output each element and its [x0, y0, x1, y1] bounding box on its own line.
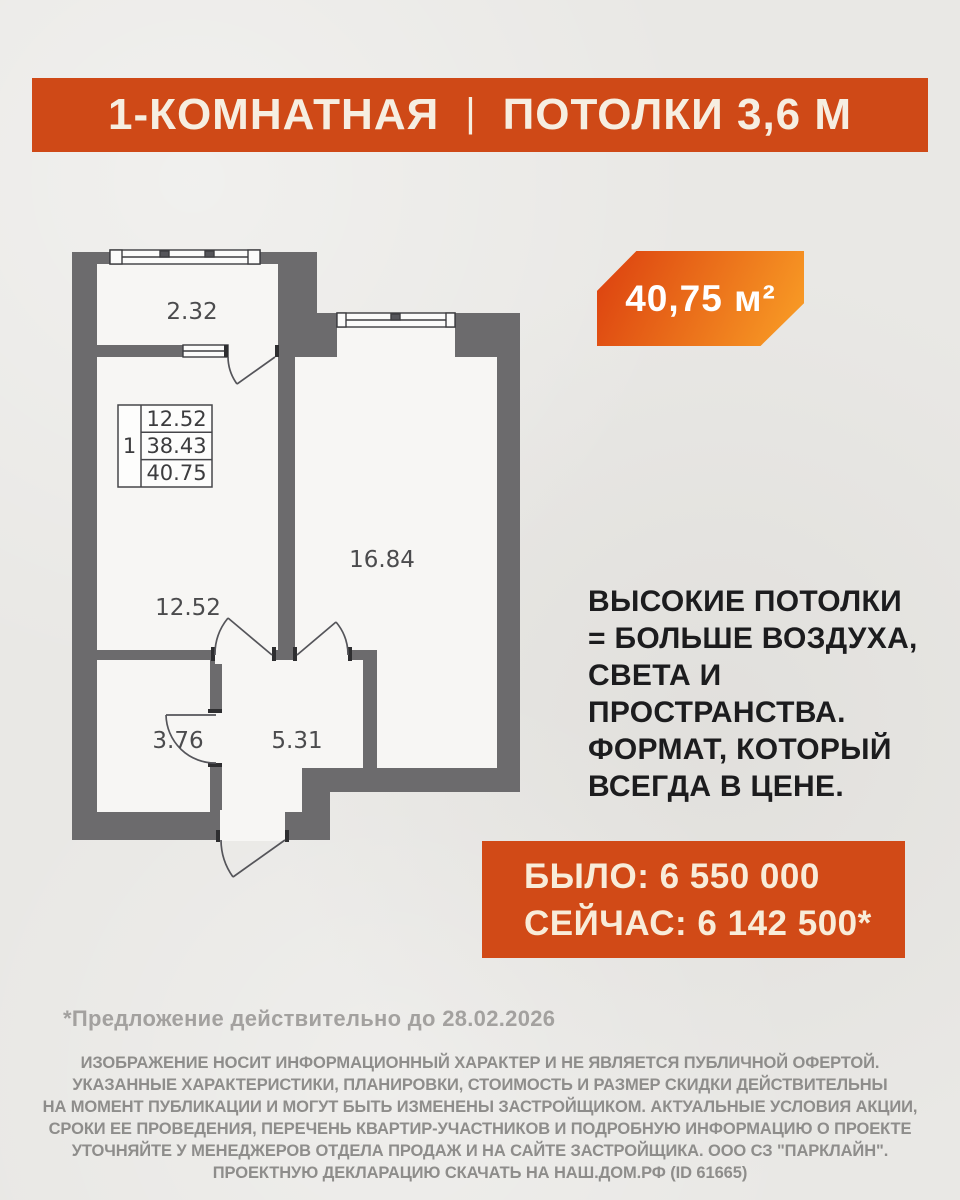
header-divider: |	[465, 91, 476, 136]
unit-area-no-balcony: 38.43	[146, 434, 206, 458]
living-room-window	[337, 313, 455, 327]
offer-footnote: *Предложение действительно до 28.02.2026	[63, 1006, 555, 1032]
bathroom-area-label: 3.76	[152, 728, 203, 754]
header-ceilings: ПОТОЛКИ 3,6 М	[503, 90, 852, 140]
price-was: БЫЛО: 6 550 000	[524, 853, 905, 900]
header-room-type: 1-КОМНАТНАЯ	[108, 90, 439, 140]
balcony-glazing-window	[110, 250, 260, 264]
floor-plan: 1 12.52 38.43 40.75 2.32 12.52 16.84 3.7…	[60, 240, 530, 885]
area-badge: 40,75 м²	[597, 251, 804, 346]
unit-number: 1	[123, 434, 136, 458]
price-banner: БЫЛО: 6 550 000 СЕЙЧАС: 6 142 500*	[482, 841, 905, 958]
balcony-area-label: 2.32	[166, 299, 217, 325]
unit-living-area: 12.52	[146, 407, 206, 431]
legal-disclaimer: ИЗОБРАЖЕНИЕ НОСИТ ИНФОРМАЦИОННЫЙ ХАРАКТЕ…	[40, 1052, 920, 1184]
price-now: СЕЙЧАС: 6 142 500*	[524, 900, 905, 947]
promo-poster: 1-КОМНАТНАЯ | ПОТОЛКИ 3,6 М	[0, 0, 960, 1200]
room-area-label: 12.52	[155, 595, 221, 621]
balcony-partition-wall	[97, 345, 183, 357]
header-banner: 1-КОМНАТНАЯ | ПОТОЛКИ 3,6 М	[32, 78, 928, 152]
area-badge-value: 40,75 м²	[625, 278, 776, 320]
unit-total-area: 40.75	[146, 461, 206, 485]
living-area-label: 16.84	[349, 547, 415, 573]
hall-area-label: 5.31	[271, 728, 322, 754]
headline-text: ВЫСОКИЕ ПОТОЛКИ = БОЛЬШЕ ВОЗДУХА, СВЕТА …	[588, 583, 918, 805]
room-partition-window	[183, 345, 228, 357]
